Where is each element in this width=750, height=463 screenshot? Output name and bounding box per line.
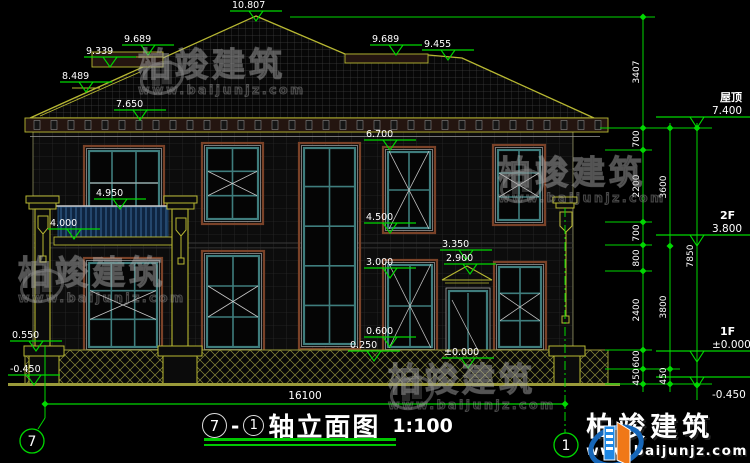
svg-text:2200: 2200 <box>632 174 642 197</box>
svg-text:0.600: 0.600 <box>366 326 393 337</box>
elevation-marker: 3.000 <box>364 257 416 278</box>
svg-text:16100: 16100 <box>288 390 321 402</box>
svg-text:6.700: 6.700 <box>366 129 393 140</box>
svg-text:±0.000: ±0.000 <box>712 339 750 351</box>
svg-text:450: 450 <box>659 367 669 384</box>
axis-bubble-1: 1 <box>243 415 264 436</box>
dimension-annotations: 10.8079.6899.3398.4897.6509.6899.4556.70… <box>0 0 750 463</box>
svg-text:9.339: 9.339 <box>86 46 113 57</box>
svg-text:7.400: 7.400 <box>712 105 742 117</box>
svg-text:3600: 3600 <box>659 175 669 198</box>
svg-text:7850: 7850 <box>686 244 696 267</box>
svg-text:9.689: 9.689 <box>372 34 399 45</box>
dimension-chain: 7850 <box>686 123 701 400</box>
svg-text:9.455: 9.455 <box>424 39 451 50</box>
title-underline-thick <box>204 438 396 441</box>
svg-text:4.500: 4.500 <box>366 212 393 223</box>
elevation-marker: 4.000 <box>48 218 100 239</box>
elevation-marker: 4.500 <box>364 212 416 233</box>
svg-text:450: 450 <box>632 368 642 385</box>
svg-text:600: 600 <box>632 350 642 367</box>
title-separator: - <box>231 414 239 438</box>
svg-text:10.807: 10.807 <box>232 0 265 11</box>
elevation-marker: 8.489 <box>60 71 112 92</box>
svg-text:3.800: 3.800 <box>712 223 742 235</box>
elevation-marker: 7.650 <box>114 99 166 120</box>
dimension-chain: 36003800450 <box>659 123 674 392</box>
bottom-dimension: 16100 <box>38 208 569 433</box>
svg-text:700: 700 <box>632 130 642 147</box>
title-scale: 1:100 <box>392 415 452 437</box>
svg-text:4.950: 4.950 <box>96 188 123 199</box>
svg-text:800: 800 <box>632 249 642 266</box>
svg-text:0.550: 0.550 <box>12 330 39 341</box>
svg-text:3.350: 3.350 <box>442 239 469 250</box>
brand-logo: 柏竣建筑 www.baijunjz.com <box>586 414 748 459</box>
dimension-chain: 340770022007008002400600450 <box>632 14 647 393</box>
svg-text:0.250: 0.250 <box>350 340 377 351</box>
title-underline-thin <box>204 444 396 446</box>
elevation-marker: 4.950 <box>94 188 146 209</box>
cad-elevation-drawing: 10.8079.6899.3398.4897.6509.6899.4556.70… <box>0 0 750 463</box>
svg-text:-0.450: -0.450 <box>712 389 746 401</box>
elevation-marker: 9.339 <box>84 46 136 67</box>
elevation-marker: 6.700 <box>364 129 416 150</box>
axis-bubble: 7 <box>20 429 44 453</box>
svg-text:7: 7 <box>28 434 37 450</box>
svg-text:屋顶: 屋顶 <box>720 91 742 104</box>
svg-text:8.489: 8.489 <box>62 71 89 82</box>
axis-bubble-7: 7 <box>202 413 227 438</box>
svg-text:4.000: 4.000 <box>50 218 77 229</box>
elevation-marker: ±0.000 <box>442 347 494 368</box>
elevation-marker: 9.689 <box>370 34 422 55</box>
svg-text:-0.450: -0.450 <box>10 364 41 375</box>
svg-text:7.650: 7.650 <box>116 99 143 110</box>
elevation-marker: 10.807 <box>230 0 282 21</box>
svg-text:±0.000: ±0.000 <box>444 347 479 358</box>
svg-text:3800: 3800 <box>659 295 669 318</box>
svg-text:9.689: 9.689 <box>124 34 151 45</box>
svg-text:2.900: 2.900 <box>446 253 473 264</box>
svg-text:2400: 2400 <box>632 298 642 321</box>
floor-level-marker: 7.400屋顶 <box>656 91 750 128</box>
elevation-marker: -0.450 <box>8 364 60 385</box>
svg-text:1F: 1F <box>720 325 735 338</box>
axis-bubble: 1 <box>554 433 578 457</box>
elevation-marker: 9.455 <box>422 39 474 60</box>
svg-text:1: 1 <box>562 438 571 454</box>
elevation-marker: 2.900 <box>444 253 496 274</box>
svg-text:3.000: 3.000 <box>366 257 393 268</box>
elevation-marker: 9.689 <box>122 34 174 55</box>
svg-text:3407: 3407 <box>632 61 642 84</box>
elevation-marker: 0.550 <box>10 330 62 351</box>
svg-text:700: 700 <box>632 224 642 241</box>
brand-logo-icon <box>586 414 648 463</box>
svg-text:2F: 2F <box>720 209 735 222</box>
